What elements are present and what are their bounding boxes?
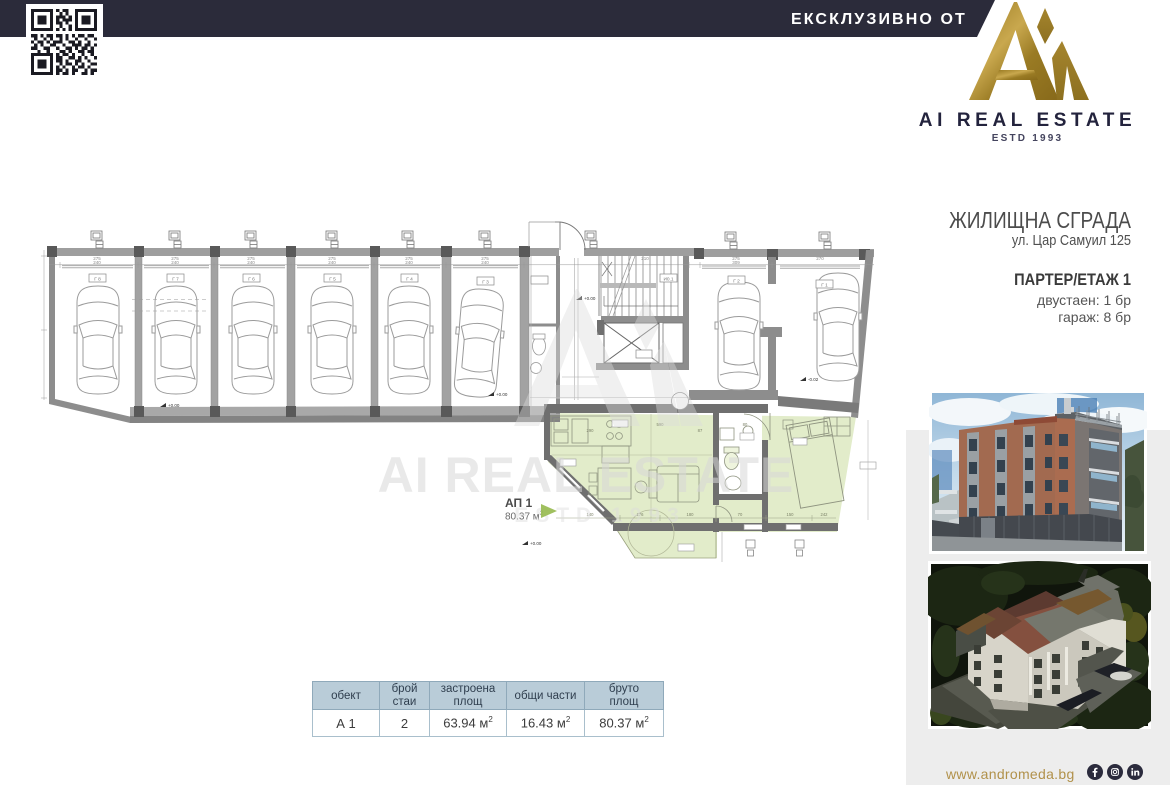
svg-text:70: 70	[738, 512, 743, 517]
svg-text:240: 240	[481, 260, 489, 265]
svg-text:-0.02: -0.02	[808, 377, 819, 382]
svg-text:180: 180	[687, 512, 695, 517]
svg-text:Г 3: Г 3	[482, 280, 489, 286]
svg-text:Г 8: Г 8	[94, 277, 101, 283]
svg-text:80: 80	[743, 422, 748, 427]
svg-text:+0.00: +0.00	[530, 541, 542, 546]
svg-text:240: 240	[171, 260, 179, 265]
svg-text:Г 4: Г 4	[406, 277, 413, 283]
svg-text:Г 2: Г 2	[733, 279, 740, 285]
svg-text:87: 87	[698, 428, 703, 433]
svg-text:210: 210	[641, 256, 649, 261]
svg-text:+0.00: +0.00	[168, 403, 180, 408]
svg-text:AI REAL ESTATE: AI REAL ESTATE	[378, 447, 795, 503]
svg-text:Г 6: Г 6	[248, 277, 255, 283]
svg-text:+0.00: +0.00	[496, 392, 508, 397]
svg-text:240: 240	[247, 260, 255, 265]
svg-text:242: 242	[821, 512, 829, 517]
svg-text:И0.1: И0.1	[663, 277, 673, 283]
svg-text:240: 240	[93, 260, 101, 265]
svg-text:290: 290	[587, 428, 595, 433]
svg-text:Г 7: Г 7	[172, 277, 179, 283]
svg-text:309: 309	[732, 260, 740, 265]
svg-text:ESTD 1993: ESTD 1993	[514, 504, 686, 527]
svg-text:Г 5: Г 5	[329, 277, 336, 283]
svg-text:240: 240	[328, 260, 336, 265]
svg-text:+0.00: +0.00	[584, 296, 596, 301]
svg-text:Г 1: Г 1	[821, 283, 828, 289]
svg-text:270: 270	[816, 256, 824, 261]
svg-text:240: 240	[405, 260, 413, 265]
svg-text:150: 150	[787, 512, 795, 517]
